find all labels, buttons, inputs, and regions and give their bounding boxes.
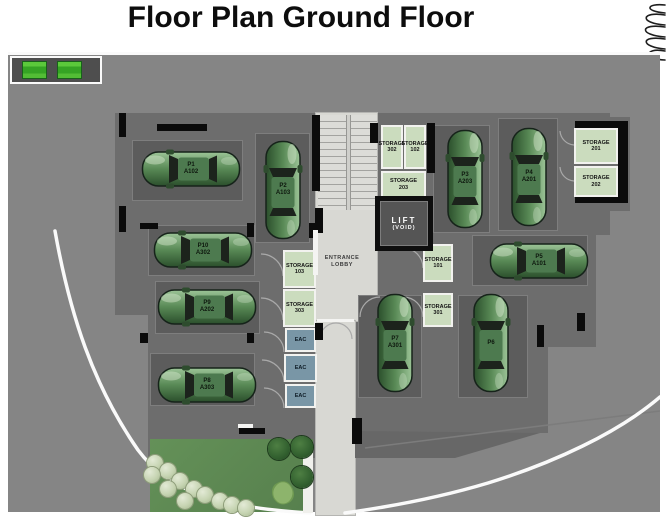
wall-segment (370, 123, 378, 143)
building-apron (355, 431, 540, 458)
eac-label: EAC (295, 393, 307, 399)
car-p4: P4A201 (479, 157, 579, 197)
white-wall-segment (238, 424, 253, 428)
storage-room: STORAGE103 (283, 250, 316, 288)
plant (269, 480, 297, 506)
storage-label-line2: 201 (591, 146, 600, 152)
car-label: P10A302 (153, 230, 253, 270)
wall-segment (157, 124, 207, 131)
eac-room: EAC (284, 354, 317, 382)
legend-swatch-green-2 (57, 61, 82, 79)
car-label: P2A103 (233, 170, 333, 210)
tree (268, 438, 290, 460)
bush (144, 467, 160, 483)
car-p9: P9A202 (157, 287, 257, 327)
eac-room: EAC (285, 384, 316, 408)
lift-void-label: (VOID) (392, 225, 415, 231)
white-wall-segment (313, 230, 318, 275)
parking-unit-number: A101 (532, 261, 546, 268)
parking-space-number: P5 (535, 254, 542, 261)
storage-label-line2: 101 (433, 263, 442, 269)
wall-segment (140, 333, 148, 343)
parking-unit-number: A202 (200, 307, 214, 314)
tree (291, 436, 313, 458)
parking-unit-number: A302 (196, 250, 210, 257)
storage-room: STORAGE202 (574, 166, 618, 197)
storage-label-line2: 301 (433, 310, 442, 316)
lift-room: LIFT (VOID) (375, 196, 433, 251)
eac-label: EAC (295, 365, 307, 371)
eac-room: EAC (285, 328, 316, 352)
parking-space-number: P8 (203, 378, 210, 385)
car-label: P8A303 (157, 365, 257, 405)
storage-room: STORAGE201 (574, 128, 618, 164)
wall-segment (140, 223, 158, 229)
entrance-lobby-label: ENTRANCE LOBBY (314, 255, 370, 269)
car-label: P4A201 (479, 157, 579, 197)
parking-space-number: P7 (391, 336, 398, 343)
eac-label: EAC (295, 337, 307, 343)
storage-room: STORAGE303 (283, 289, 316, 327)
car-p8: P8A303 (157, 365, 257, 405)
wall-segment (247, 333, 254, 343)
parking-unit-number: A102 (184, 169, 198, 176)
storage-label-line2: 103 (295, 269, 304, 275)
storage-label-line2: 102 (410, 147, 419, 153)
wall-segment (119, 206, 126, 232)
parking-space-number: P9 (203, 300, 210, 307)
car-label: P9A202 (157, 287, 257, 327)
storage-label-line2: 303 (295, 308, 304, 314)
parking-space-number: P6 (487, 340, 494, 347)
car-p6: P6 (441, 323, 541, 363)
parking-unit-number: A301 (388, 343, 402, 350)
car-p5: P5A101 (489, 241, 589, 281)
parking-unit-number: A203 (458, 179, 472, 186)
entrance-lobby-line2: LOBBY (314, 262, 370, 269)
storage-room: STORAGE302 (381, 125, 403, 169)
bush (197, 487, 213, 503)
car-p10: P10A302 (153, 230, 253, 270)
wall-segment (575, 197, 620, 203)
floor-plan: ENTRANCE LOBBY LIFT (VOID) ST (8, 52, 660, 512)
car-label: P7A301 (345, 323, 445, 363)
wall-segment (119, 113, 126, 137)
car-p2: P2A103 (233, 170, 333, 210)
parking-space-number: P10 (198, 243, 209, 250)
car-p7: P7A301 (345, 323, 445, 363)
lift-label: LIFT (392, 216, 417, 225)
storage-label-line2: 203 (399, 185, 408, 191)
legend-box (10, 56, 102, 84)
storage-room: STORAGE301 (423, 293, 453, 327)
wall-segment (315, 323, 323, 340)
car-p1: P1A102 (141, 149, 241, 189)
entrance-lobby-line1: ENTRANCE (314, 255, 370, 262)
car-label: P1A102 (141, 149, 241, 189)
wall-segment (575, 121, 620, 128)
bush (160, 481, 176, 497)
bush (177, 493, 193, 509)
storage-label-line2: 302 (387, 147, 396, 153)
wall-segment (352, 418, 362, 444)
wall-segment (239, 428, 265, 434)
parking-unit-number: A103 (276, 190, 290, 197)
lift-shaft: LIFT (VOID) (380, 201, 428, 246)
parking-space-number: P3 (461, 172, 468, 179)
wall-segment (618, 121, 628, 203)
parking-space-number: P1 (187, 162, 194, 169)
legend-swatch-green-1 (22, 61, 47, 79)
page-title: Floor Plan Ground Floor (36, 0, 566, 40)
parking-unit-number: A303 (200, 385, 214, 392)
white-wall-segment (317, 319, 354, 322)
car-label: P5A101 (489, 241, 589, 281)
parking-space-number: P2 (279, 183, 286, 190)
storage-label-line2: 202 (591, 182, 600, 188)
plant-leaf (269, 479, 297, 507)
car-label: P6 (441, 323, 541, 363)
parking-space-number: P4 (525, 170, 532, 177)
parking-unit-number: A201 (522, 177, 536, 184)
bush (238, 500, 254, 516)
wall-segment (577, 313, 585, 331)
